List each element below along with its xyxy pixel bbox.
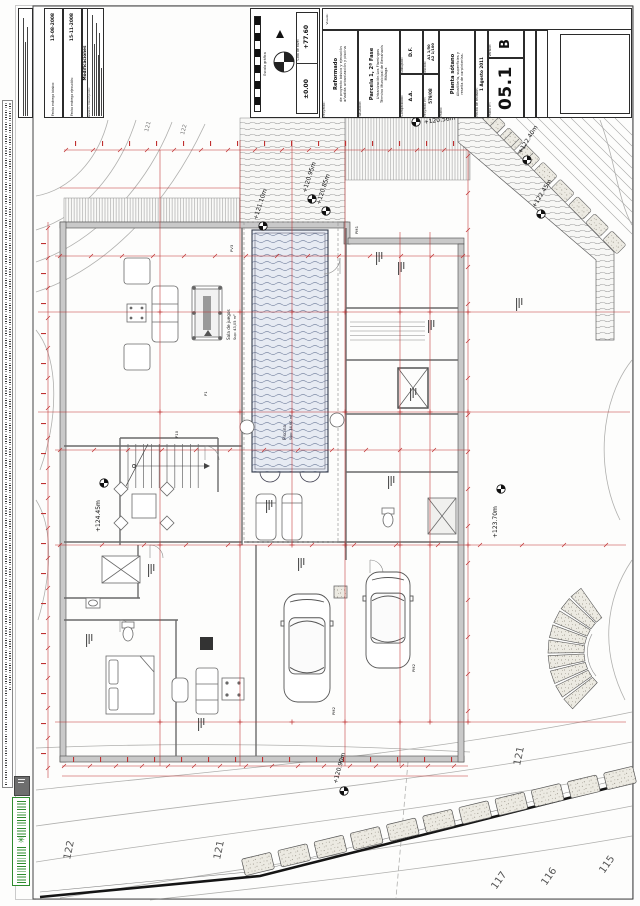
washbasin xyxy=(86,598,100,608)
notes-header-box xyxy=(14,776,30,796)
stone-band-driveway xyxy=(458,118,614,340)
comprobado-label: Comprobado: xyxy=(401,95,405,117)
graphic-scale-bar xyxy=(254,16,261,112)
dibujado-label: Dibujado: xyxy=(401,57,405,72)
floor-plan-canvas: +120.56m +120.95m +120.85m +121.10m +122… xyxy=(0,0,640,906)
contour-label: 115 xyxy=(597,854,617,876)
logo-text-bottom xyxy=(17,846,26,883)
shower xyxy=(102,556,140,583)
margin-notes-strip xyxy=(2,100,13,788)
door-code: PM2 xyxy=(411,663,416,672)
door-code: P1 xyxy=(203,391,208,396)
proyecto-num-value: 579/08 xyxy=(429,88,434,103)
armchair xyxy=(124,258,150,284)
escala-label: Escala: xyxy=(424,61,428,72)
interior-staircase xyxy=(126,444,210,488)
level-label: +124.45m xyxy=(95,500,102,532)
cota-valor: +77.60 xyxy=(303,25,310,49)
suite-sofa xyxy=(196,668,218,714)
contour-label: 122 xyxy=(180,124,189,136)
contour-label: 121 xyxy=(512,746,527,767)
contour-label: 121 xyxy=(212,840,227,861)
fecha-ejecucion-value: 15-11-2008 xyxy=(70,8,75,41)
armchair xyxy=(124,344,150,370)
visado-row xyxy=(322,8,632,30)
technician-box-text xyxy=(18,8,33,118)
room-label: Sup: 43,05 m² xyxy=(233,314,237,340)
datum-arrow-icon xyxy=(276,30,284,38)
pool-step xyxy=(300,472,320,482)
billiard-table xyxy=(192,286,222,340)
door-code: PM1 xyxy=(354,225,359,234)
dimension-numbers xyxy=(41,141,454,762)
bed xyxy=(106,656,154,714)
notes-column xyxy=(5,103,7,785)
room-label: Sup: 34,60 m² xyxy=(289,414,293,440)
leaf-emblem-icon: ✳ xyxy=(17,837,25,846)
side-table xyxy=(240,420,254,434)
comprobado-value: A.A. xyxy=(409,91,415,102)
pool-step xyxy=(260,472,280,482)
fecha-ejecucion-label: Fecha entrega ejecución: xyxy=(71,77,75,118)
contour-label: 122 xyxy=(62,840,77,861)
stamp-area xyxy=(560,34,630,114)
dibujado-value: D.F. xyxy=(409,47,415,57)
situacion-sub3: Málaga xyxy=(384,68,388,81)
notes-column xyxy=(9,103,11,690)
suite-table xyxy=(222,678,244,700)
level-label: +123.70m xyxy=(492,506,499,538)
fecha-basico-value: 13-08-2008 xyxy=(51,8,56,41)
door-code: P10 xyxy=(174,430,179,438)
drawing-sheet: +120.56m +120.95m +120.85m +121.10m +122… xyxy=(0,0,640,906)
version-label: Versión: xyxy=(489,44,493,57)
terrace-steps xyxy=(350,322,425,340)
escala-value2: A2 1/100 xyxy=(431,43,435,61)
cota-cero: ±0.00 xyxy=(303,79,310,99)
architect-logo-box: ✳ xyxy=(12,797,30,886)
ottoman xyxy=(172,678,188,702)
coffee-table xyxy=(127,304,146,322)
plano-num-value: 05.1 xyxy=(496,66,516,110)
kitchenette xyxy=(200,637,213,650)
toilet-2 xyxy=(382,508,394,527)
contour-label: 116 xyxy=(539,866,559,888)
escala-grafica-label: Escala gráfica xyxy=(263,52,267,76)
dining-set xyxy=(132,494,156,518)
proyecto-sub2: añadida urbanización y piscina xyxy=(343,46,347,102)
version-value: B xyxy=(498,39,514,49)
proyecto-label: Proyecto: xyxy=(323,102,327,117)
cota-nivel-label: Cota de nivel xyxy=(297,39,301,60)
contour-label: 121 xyxy=(144,121,153,133)
empty-cell-2 xyxy=(536,30,548,118)
plano-num-label: Plano nº: xyxy=(489,102,493,116)
room-label: Piscina xyxy=(282,425,288,440)
revision-entries xyxy=(91,8,103,118)
plano-label: Plano: xyxy=(440,107,444,117)
side-table xyxy=(330,413,344,427)
toilet xyxy=(122,622,134,641)
north-benchmark-icon xyxy=(272,50,296,74)
door-code: PM2 xyxy=(331,706,336,715)
plano-sub2: reseña de carpinterías. xyxy=(460,53,464,94)
fecha-label: Fecha de revisión: xyxy=(476,88,480,117)
shower-2 xyxy=(428,498,456,534)
visado-label: Visado: xyxy=(326,14,330,25)
contour-label: 117 xyxy=(489,870,509,892)
logo-text-top xyxy=(17,800,26,837)
empty-cell-1 xyxy=(524,30,536,118)
room-label: Sala de juegos xyxy=(226,309,231,340)
sofa xyxy=(152,286,178,342)
situacion-label: Situación: xyxy=(359,101,363,117)
door-code: PV3 xyxy=(229,244,234,252)
fecha-basico-label: Fecha entrega básico: xyxy=(52,82,56,118)
fecha-value: 1 Agosto 2011 xyxy=(479,57,484,91)
proyecto-num-label: Proyecto nº: xyxy=(424,97,428,116)
